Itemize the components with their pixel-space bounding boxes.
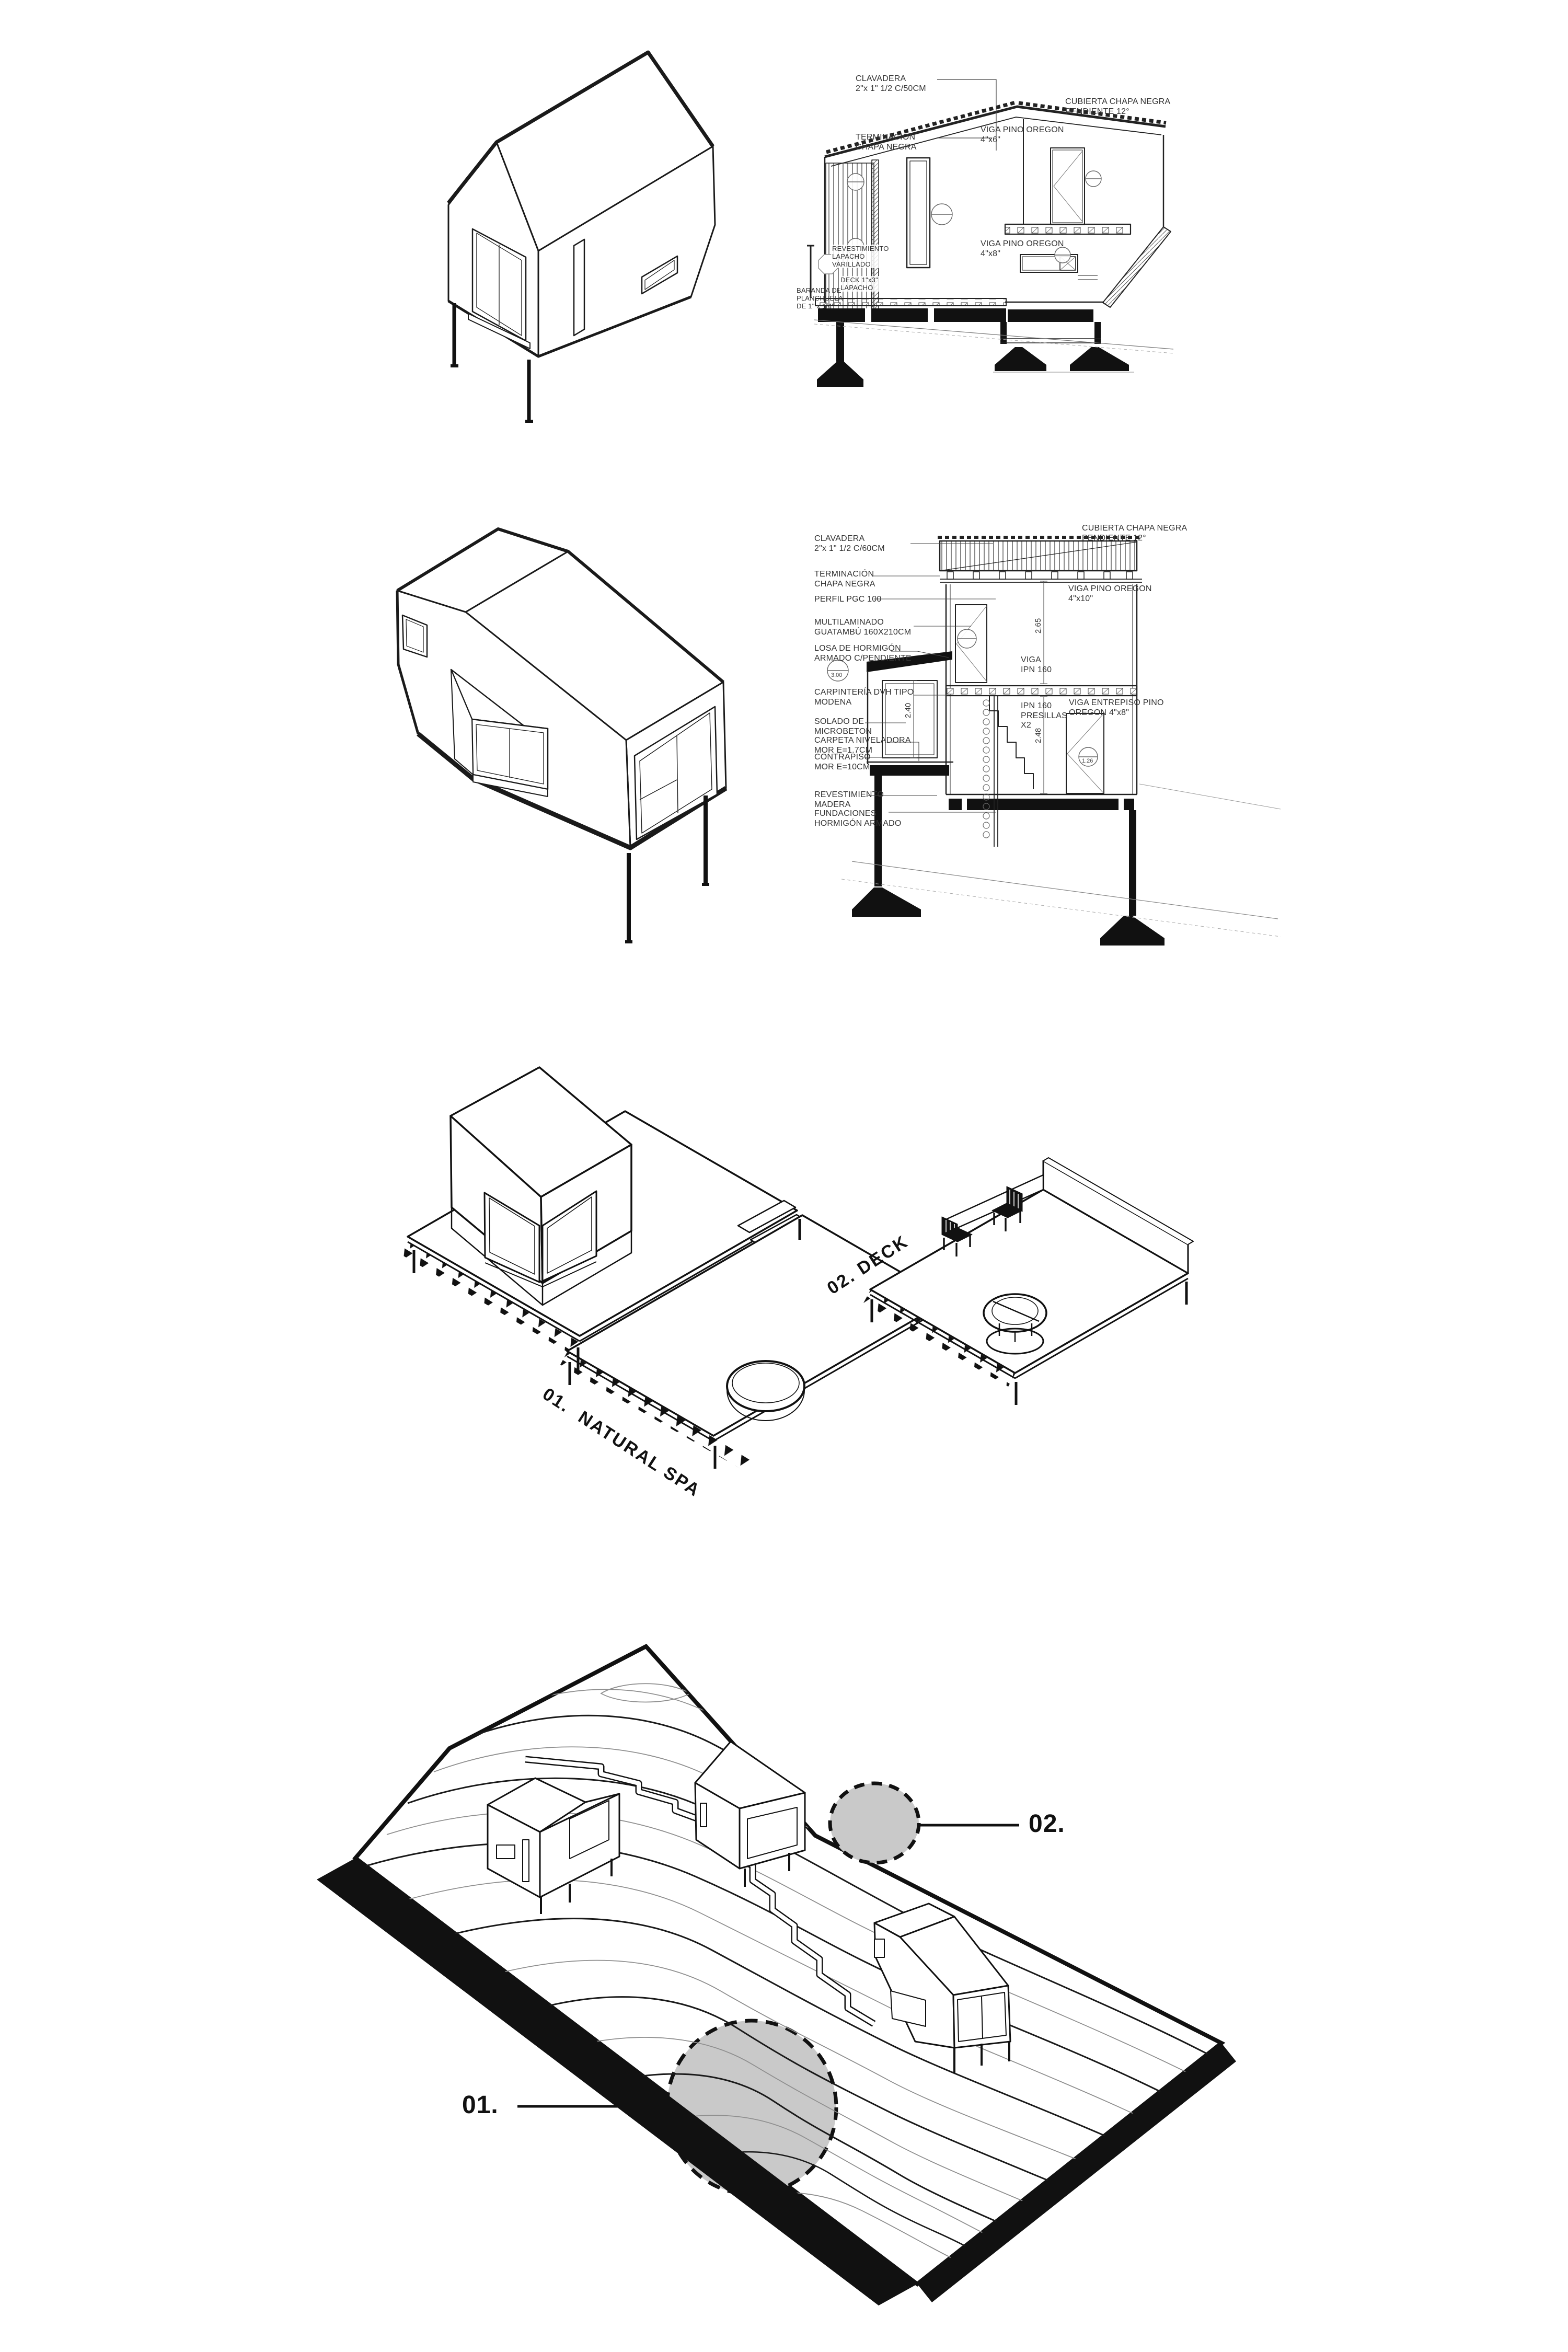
label-contrapiso: CONTRAPISOMOR E=10CM	[814, 753, 871, 772]
deck-gap-2	[928, 308, 934, 322]
footing-mid	[995, 347, 1046, 371]
label-viga-entrepiso: VIGA PINO OREGON4"x8"	[981, 239, 1064, 259]
panel1-drawing	[0, 0, 1568, 497]
label-cubierta: CUBIERTA CHAPA NEGRAPENDIENTE 12°	[1065, 97, 1170, 117]
label-presillas: IPN 160PRESILLASX2	[1021, 701, 1067, 731]
footing-right	[1070, 347, 1129, 371]
label-carpinteria: CARPINTERÍA DVH TIPOMODENA	[814, 688, 914, 707]
terrain-leader	[1139, 784, 1281, 809]
label-viga-cubierta-2: VIGA PINO OREGON4"x10"	[1068, 584, 1152, 604]
label-viga-ipn: VIGAIPN 160	[1021, 655, 1052, 675]
label-baranda: BARANDA DEPLANCHUELADE 1" x 1/4"	[797, 286, 843, 310]
footing-right	[1100, 916, 1165, 946]
bolt-chain	[983, 700, 989, 838]
chamfer-wall	[1103, 227, 1171, 307]
bottom-beam	[949, 799, 1134, 810]
corner-post	[872, 160, 879, 316]
deck-gap-1	[865, 308, 871, 322]
label-multilaminado: MULTILAMINADOGUATAMBÚ 160X210CM	[814, 618, 911, 637]
panel3-drawing	[0, 967, 1568, 1620]
panel-axon-section-2: CLAVADERA2"x 1" 1/2 C/60CM TERMINACIÓNCH…	[0, 497, 1568, 967]
ipn-column	[994, 696, 998, 847]
ground-hatch	[814, 324, 1173, 353]
panel4-drawing	[0, 1620, 1568, 2352]
panel-exploded-decks: 01. NATURAL SPA 02. DECK	[0, 967, 1568, 1620]
dim-upper: 2.65	[1034, 618, 1043, 633]
leg-feet	[451, 366, 533, 421]
label-clavadera-2: CLAVADERA2"x 1" 1/2 C/60CM	[814, 534, 885, 554]
ground-line	[814, 320, 1173, 349]
panel-axon-section-1: CLAVADERA2"x 1" 1/2 C/50CM TERMINACIÓNCH…	[0, 0, 1568, 497]
label-terminacion: TERMINACIÓNCHAPA NEGRA	[856, 133, 917, 152]
label-fundaciones: FUNDACIONESHORMIGÓN ARMADO	[814, 809, 902, 828]
deck-beam-left	[818, 308, 1006, 322]
panel-site-axon: 02. 01.	[0, 1620, 1568, 2352]
cabin-axon-front	[448, 52, 715, 421]
annex-beam	[870, 765, 949, 776]
deck-assembly	[863, 1158, 1193, 1405]
label-terminacion-2: TERMINACIÓNCHAPA NEGRA	[814, 570, 875, 589]
dim-window: 2.40	[904, 703, 913, 718]
label-site-01: 01.	[462, 2091, 499, 2119]
label-losa: LOSA DE HORMIGÓNARMADO C/PENDIENTE	[814, 644, 912, 663]
footing-left	[817, 362, 863, 387]
pile-right	[1094, 322, 1101, 344]
roof-slab	[940, 579, 1142, 582]
step-lines	[1078, 275, 1098, 280]
footing-left	[852, 887, 921, 917]
mid-floor-slab	[946, 686, 1137, 696]
label-clavadera: CLAVADERA2"x 1" 1/2 C/50CM	[856, 74, 926, 94]
slit-window	[574, 239, 584, 336]
pile-left	[836, 322, 844, 362]
dim-lower: 2.48	[1034, 728, 1043, 743]
cabin-axon-rear	[397, 529, 726, 942]
door-upper	[1051, 148, 1085, 225]
label-site-02: 02.	[1029, 1809, 1065, 1838]
label-viga-cubierta: VIGA PINO OREGON4"x6"	[981, 125, 1064, 145]
label-viga-entrepiso-2: VIGA ENTREPISO PINOOREGON 4"x8"	[1069, 698, 1164, 718]
label-solado: SOLADO DEMICROBETON	[814, 717, 872, 736]
label-deck: DECK 1"x3"LAPACHO	[839, 276, 879, 292]
deck-boards	[815, 298, 1006, 306]
tag-puerta: 1.26	[1082, 758, 1093, 764]
beam-gap-1	[962, 799, 967, 810]
highlight-circle-02	[830, 1783, 919, 1863]
deck-beam-right	[1008, 309, 1093, 322]
tag-losa: 3.00	[831, 672, 842, 678]
leg-feet	[625, 884, 709, 942]
panel2-drawing	[0, 497, 1568, 967]
floor-slab-joists	[1005, 224, 1131, 234]
label-revestimiento-2: REVESTIMIENTOMADERA	[814, 790, 884, 810]
label-revestimiento: REVESTIMIENTOLAPACHOVARILLADO	[831, 245, 890, 268]
pile-mid	[1000, 322, 1007, 344]
label-cubierta-2: CUBIERTA CHAPA NEGRAPENDIENTE 12°	[1082, 524, 1187, 543]
label-perfil: PERFIL PGC 100	[814, 595, 881, 605]
spa-tub	[727, 1361, 804, 1411]
architecture-sheet: CLAVADERA2"x 1" 1/2 C/50CM TERMINACIÓNCH…	[0, 0, 1568, 2352]
beam-gap-2	[1119, 799, 1124, 810]
railing-posts	[947, 572, 1133, 579]
